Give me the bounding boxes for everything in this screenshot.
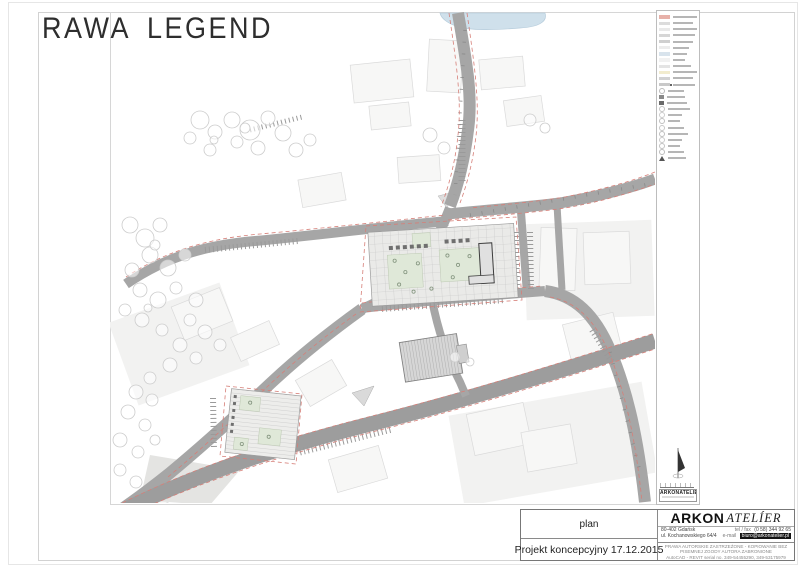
company-address: 80-402 Gdańsk ul. Kochanowskiego 64/4 bbox=[661, 528, 717, 541]
fineprint-line-2: AutoCAD - REVIT serial no. 349-54455290,… bbox=[660, 555, 792, 560]
email-value: biuro@arkonatelier.pl bbox=[740, 533, 791, 539]
legend-label-bar bbox=[673, 28, 697, 30]
legend-swatch bbox=[659, 83, 670, 86]
legend-swatch bbox=[659, 156, 665, 161]
legend-swatch bbox=[659, 88, 665, 94]
north-arrow-icon bbox=[665, 446, 691, 482]
project-name: Projekt koncepcyjny 17.12.2015 bbox=[521, 539, 657, 560]
title-block-right: ARKON ATELÍER 80-402 Gdańsk ul. Kochanow… bbox=[658, 510, 794, 560]
legend-label-bar bbox=[668, 157, 686, 159]
drawing-name: plan bbox=[521, 510, 657, 539]
legend-swatch bbox=[659, 143, 665, 149]
legend-items bbox=[659, 14, 698, 161]
legend-label-bar bbox=[667, 96, 685, 98]
legend-label-bar bbox=[668, 120, 680, 122]
legend-label-bar bbox=[673, 59, 685, 61]
legend-swatch bbox=[659, 131, 665, 137]
legend-swatch bbox=[659, 22, 670, 25]
legend-label-bar bbox=[668, 127, 684, 129]
legend-swatch bbox=[659, 77, 670, 80]
fineprint: PRAWA AUTORSKIE ZASTRZEŻONE - KOPIOWANIE… bbox=[658, 542, 794, 560]
legend-swatch bbox=[659, 95, 664, 99]
legend-swatch bbox=[659, 125, 665, 131]
lower-square bbox=[225, 389, 301, 460]
legend-panel: ARKONATELIER bbox=[656, 10, 700, 505]
site-plan-map bbox=[110, 12, 655, 503]
legend-label-bar bbox=[673, 16, 697, 18]
market-square bbox=[368, 223, 518, 306]
legend-label-bar bbox=[668, 151, 684, 153]
legend-label-bar bbox=[673, 22, 693, 24]
legend-swatch bbox=[659, 137, 665, 143]
address-line-2: ul. Kochanowskiego 64/4 bbox=[661, 534, 717, 540]
title-block: plan Projekt koncepcyjny 17.12.2015 ARKO… bbox=[520, 509, 795, 561]
company-logo: ARKON ATELÍER bbox=[658, 510, 794, 527]
legend-label-bar bbox=[673, 84, 695, 86]
legend-logo-lines bbox=[662, 496, 694, 499]
sheet-title: RAWALEGEND bbox=[42, 12, 273, 45]
legend-label-bar bbox=[667, 102, 687, 104]
legend-swatch bbox=[659, 52, 670, 55]
legend-label-bar bbox=[668, 139, 682, 141]
sheet-title-word-1: RAWA bbox=[42, 12, 131, 44]
legend-swatch bbox=[659, 46, 670, 49]
legend-label-bar bbox=[673, 41, 693, 43]
title-block-left: plan Projekt koncepcyjny 17.12.2015 bbox=[521, 510, 658, 560]
fineprint-line-1: PRAWA AUTORSKIE ZASTRZEŻONE - KOPIOWANIE… bbox=[660, 544, 792, 555]
legend-swatch bbox=[659, 40, 670, 43]
legend-swatch bbox=[659, 101, 664, 105]
scale-bar bbox=[660, 483, 694, 488]
legend-label-bar bbox=[668, 114, 682, 116]
company-phone-email: tel / fax (0 58) 344 92 65 e-mail biuro@… bbox=[723, 528, 791, 541]
brand-secondary: ATELÍER bbox=[726, 511, 781, 526]
legend-label-bar bbox=[673, 53, 687, 55]
legend-label-bar bbox=[668, 108, 690, 110]
legend-swatch bbox=[659, 65, 670, 68]
email-label: e-mail bbox=[723, 533, 737, 539]
legend-swatch bbox=[659, 15, 670, 18]
legend-label-bar bbox=[673, 34, 695, 36]
legend-swatch bbox=[659, 58, 670, 61]
legend-label-bar bbox=[668, 145, 680, 147]
legend-swatch bbox=[659, 34, 670, 37]
company-contact: 80-402 Gdańsk ul. Kochanowskiego 64/4 te… bbox=[658, 527, 794, 542]
legend-swatch bbox=[659, 71, 670, 74]
brand-primary: ARKON bbox=[671, 510, 725, 526]
legend-logo-box: ARKONATELIER bbox=[659, 489, 697, 502]
legend-label-bar bbox=[673, 77, 693, 79]
legend-swatch bbox=[659, 28, 670, 31]
legend-label-bar bbox=[673, 71, 697, 73]
legend-item bbox=[659, 155, 698, 161]
legend-label-bar bbox=[668, 90, 684, 92]
legend-logo-text: ARKONATELIER bbox=[660, 490, 696, 496]
sheet-title-word-2: LEGEND bbox=[147, 12, 273, 44]
legend-label-bar bbox=[673, 47, 689, 49]
legend-label-bar bbox=[668, 133, 688, 135]
legend-label-bar bbox=[673, 65, 691, 67]
